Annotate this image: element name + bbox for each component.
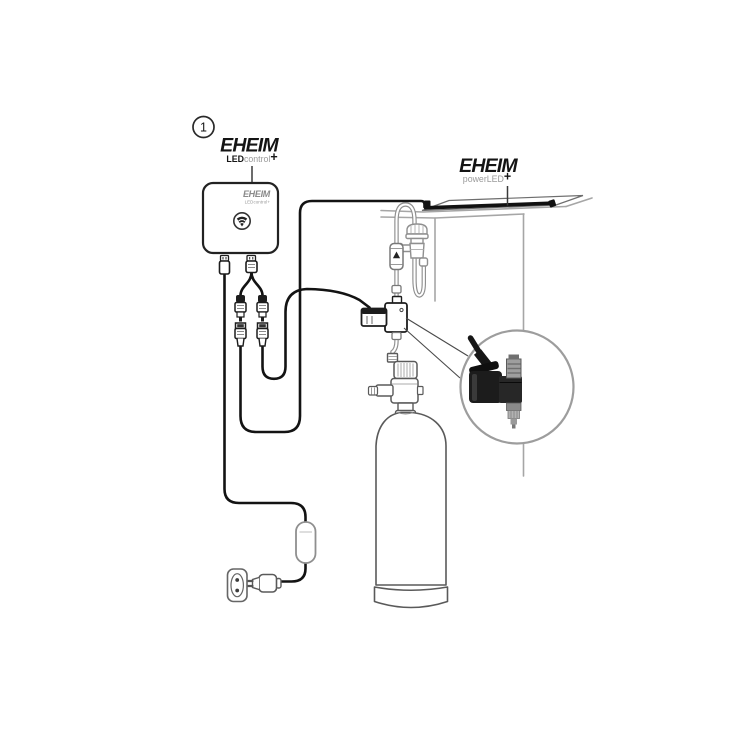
y-splitter-plug bbox=[246, 256, 257, 273]
diffuser-body bbox=[410, 244, 424, 259]
regulator-outlet-fitting bbox=[388, 354, 398, 363]
solenoid-photo-nozzle bbox=[511, 419, 518, 425]
tube-collar-upper bbox=[392, 286, 401, 294]
regulator-body bbox=[391, 379, 418, 404]
pressure-regulator bbox=[369, 354, 424, 418]
device-print-model: LEDcontrol+ bbox=[245, 200, 271, 205]
badge-number-text: 1 bbox=[200, 121, 207, 135]
splitter-socket-right bbox=[257, 323, 268, 346]
ledcontrol-label: EHEIM LEDcontrol+ bbox=[220, 135, 279, 183]
solenoid-photo-valve-block bbox=[499, 376, 522, 403]
solenoid-connector-cap bbox=[362, 309, 387, 315]
solenoid-cable bbox=[263, 289, 370, 379]
splitter-branch-plug-left bbox=[235, 295, 246, 322]
solenoid-body bbox=[385, 303, 407, 332]
cylinder-body bbox=[376, 413, 446, 586]
power-cable-to-plug bbox=[281, 563, 306, 582]
diffuser-neck bbox=[411, 239, 423, 244]
splitter-branch-plug-right bbox=[257, 295, 268, 322]
solenoid-photo-outlet-nut bbox=[507, 403, 522, 411]
step-number-badge: 1 bbox=[193, 117, 214, 138]
wall-socket bbox=[228, 569, 248, 602]
check-valve bbox=[390, 244, 403, 270]
regulator-left-outlet bbox=[376, 385, 393, 396]
aquarium-rim-front-edge bbox=[381, 214, 524, 218]
power-input-plug bbox=[220, 256, 230, 275]
y-splitter-branch-left bbox=[241, 273, 252, 296]
ledcontrol-device: EHEIM LEDcontrol+ bbox=[203, 183, 278, 253]
diffuser-cap bbox=[407, 224, 427, 234]
solenoid-detail-inset bbox=[461, 331, 574, 444]
regulator-adjustment-knob bbox=[394, 362, 417, 379]
mains-plug bbox=[247, 575, 282, 593]
splitter-socket-left bbox=[235, 323, 246, 346]
y-splitter-branch-right bbox=[252, 273, 263, 296]
cylinder-foot-ring bbox=[375, 587, 448, 608]
callout-line-1 bbox=[406, 318, 468, 356]
co2-cylinder bbox=[375, 413, 448, 608]
tube-collar-lower bbox=[392, 333, 401, 340]
socket-hole-top bbox=[235, 578, 239, 582]
regulator-side-port bbox=[418, 387, 424, 395]
device-print-brand: EHEIM bbox=[243, 189, 271, 199]
socket-hole-bottom bbox=[235, 589, 239, 593]
diffuser-stem bbox=[420, 258, 428, 266]
regulator-left-knob bbox=[369, 387, 378, 396]
installation-diagram: EHEIM powerLED+ bbox=[0, 0, 750, 750]
power-supply-unit bbox=[296, 522, 316, 563]
